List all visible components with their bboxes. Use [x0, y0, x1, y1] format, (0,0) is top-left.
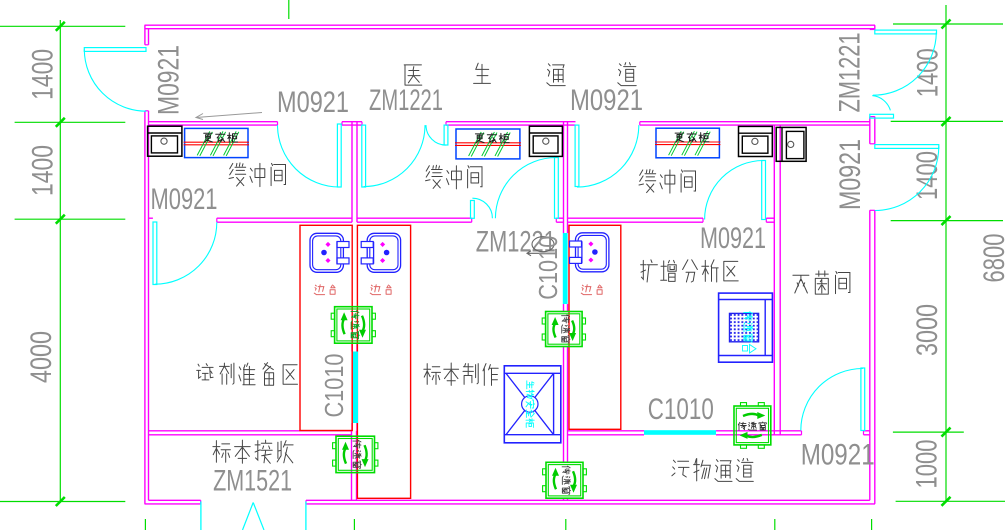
svg-text:6800: 6800 [978, 234, 1005, 283]
svg-text:1400: 1400 [911, 48, 944, 97]
svg-text:1400: 1400 [26, 145, 59, 196]
svg-text:ZM1221: ZM1221 [369, 84, 443, 117]
svg-text:M0921: M0921 [151, 183, 218, 216]
svg-text:C1010: C1010 [319, 354, 349, 418]
svg-text:M0921: M0921 [700, 222, 766, 255]
svg-text:3000: 3000 [911, 304, 944, 356]
svg-text:ZM1221: ZM1221 [833, 33, 866, 113]
svg-text:M0921: M0921 [152, 45, 185, 115]
svg-text:1400: 1400 [26, 49, 59, 100]
svg-text:ZM1521: ZM1521 [213, 465, 292, 498]
svg-text:1400: 1400 [911, 151, 944, 200]
svg-text:C1010: C1010 [648, 393, 714, 426]
svg-text:1000: 1000 [910, 440, 943, 489]
svg-text:4000: 4000 [25, 331, 58, 383]
svg-text:M0921: M0921 [277, 86, 349, 119]
svg-text:M0921: M0921 [834, 139, 867, 210]
svg-text:M0921: M0921 [801, 439, 875, 472]
svg-text:M0921: M0921 [570, 84, 643, 117]
svg-text:C1010: C1010 [533, 236, 563, 300]
